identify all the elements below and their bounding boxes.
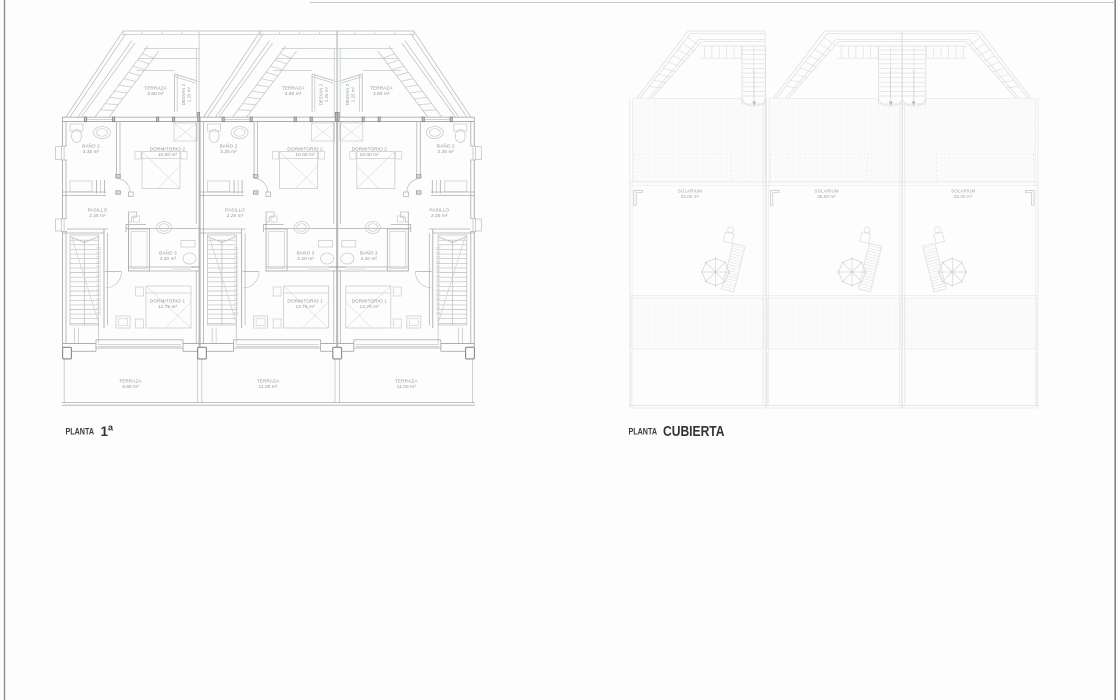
svg-text:SOLARIUM: SOLARIUM <box>815 189 839 194</box>
svg-text:12.75 m²: 12.75 m² <box>360 304 380 309</box>
svg-text:DESVAN 2: DESVAN 2 <box>181 83 186 105</box>
svg-text:3.35 m²: 3.35 m² <box>83 149 100 154</box>
svg-text:a: a <box>108 423 114 433</box>
svg-text:DORMITORIO 1: DORMITORIO 1 <box>287 299 323 304</box>
svg-text:DORMITORIO 1: DORMITORIO 1 <box>352 299 388 304</box>
svg-text:BAÑO 2: BAÑO 2 <box>82 143 100 149</box>
svg-text:CUBIERTA: CUBIERTA <box>663 424 725 440</box>
svg-text:25.00 m²: 25.00 m² <box>681 194 700 199</box>
svg-text:4.20 m²: 4.20 m² <box>360 256 377 261</box>
svg-text:TERRAZA: TERRAZA <box>282 86 305 91</box>
svg-text:2.25 m²: 2.25 m² <box>431 213 448 218</box>
svg-text:10.00 m²: 10.00 m² <box>295 152 315 157</box>
svg-text:SOLARIUM: SOLARIUM <box>678 189 702 194</box>
svg-text:11.00 m²: 11.00 m² <box>397 384 416 389</box>
svg-text:2.25 m²: 2.25 m² <box>89 213 106 218</box>
svg-text:2.25 m²: 2.25 m² <box>227 213 244 218</box>
svg-text:PASILLO: PASILLO <box>429 208 449 213</box>
svg-text:25.00 m²: 25.00 m² <box>817 194 836 199</box>
svg-text:TERRAZA: TERRAZA <box>257 379 280 384</box>
svg-text:3.35 m²: 3.35 m² <box>437 149 454 154</box>
svg-text:12.75 m²: 12.75 m² <box>295 304 315 309</box>
svg-text:DORMITORIO 2: DORMITORIO 2 <box>150 147 186 152</box>
svg-text:10.00 m²: 10.00 m² <box>158 152 178 157</box>
svg-text:10.00 m²: 10.00 m² <box>360 152 380 157</box>
svg-text:DORMITORIO 1: DORMITORIO 1 <box>150 299 186 304</box>
svg-text:3.60 m²: 3.60 m² <box>373 91 390 96</box>
svg-text:TERRAZA: TERRAZA <box>395 379 418 384</box>
svg-text:3.35 m²: 3.35 m² <box>220 149 237 154</box>
svg-text:1.25 m²: 1.25 m² <box>187 86 192 102</box>
svg-text:TERRAZA: TERRAZA <box>119 379 142 384</box>
svg-text:BAÑO 2: BAÑO 2 <box>220 143 238 149</box>
svg-text:BAÑO 3: BAÑO 3 <box>297 250 315 256</box>
svg-text:DESVAN 2: DESVAN 2 <box>345 83 350 105</box>
svg-text:4.20 m²: 4.20 m² <box>160 256 177 261</box>
svg-text:DORMITORIO 2: DORMITORIO 2 <box>287 147 323 152</box>
svg-text:11.00 m²: 11.00 m² <box>259 384 278 389</box>
svg-text:PLANTA: PLANTA <box>629 427 658 437</box>
svg-text:TERRAZA: TERRAZA <box>370 86 393 91</box>
svg-text:SOLARIUM: SOLARIUM <box>951 189 975 194</box>
svg-text:12.75 m²: 12.75 m² <box>158 304 178 309</box>
svg-text:PASILLO: PASILLO <box>88 208 108 213</box>
svg-text:4.20 m²: 4.20 m² <box>297 256 314 261</box>
svg-text:BAÑO 3: BAÑO 3 <box>360 250 378 256</box>
svg-text:DORMITORIO 2: DORMITORIO 2 <box>352 147 388 152</box>
svg-text:1.25 m²: 1.25 m² <box>324 86 329 102</box>
svg-text:1.25 m²: 1.25 m² <box>350 86 355 102</box>
svg-text:3.60 m²: 3.60 m² <box>147 91 164 96</box>
svg-text:3.60 m²: 3.60 m² <box>285 91 302 96</box>
svg-text:DESVAN 2: DESVAN 2 <box>319 83 324 105</box>
svg-text:BAÑO 3: BAÑO 3 <box>159 250 177 256</box>
svg-text:PASILLO: PASILLO <box>225 208 245 213</box>
svg-text:BAÑO 2: BAÑO 2 <box>437 143 455 149</box>
svg-text:TERRAZA: TERRAZA <box>144 86 167 91</box>
svg-text:25.00 m²: 25.00 m² <box>954 194 973 199</box>
svg-text:9.80 m²: 9.80 m² <box>122 384 139 389</box>
svg-text:PLANTA: PLANTA <box>66 427 95 437</box>
